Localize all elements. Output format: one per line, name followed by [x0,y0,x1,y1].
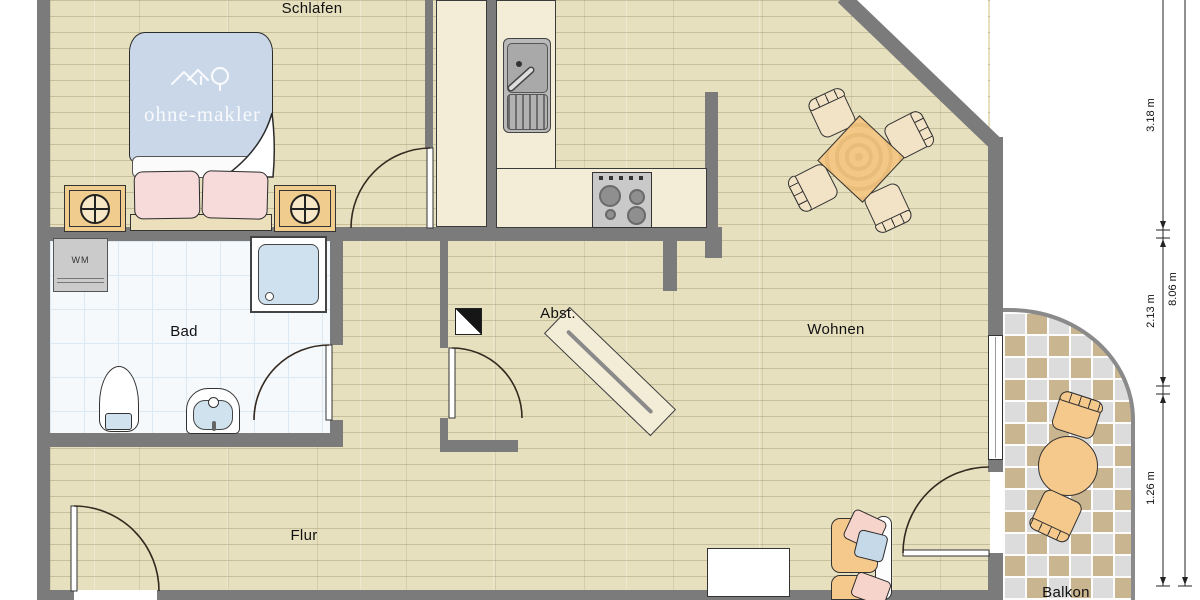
dim-3-18: 3.18 m [1145,98,1157,132]
room-label-abst: Abst. [528,305,588,322]
dim-8-06: 8.06 m [1167,272,1179,306]
nightstand-right [274,185,336,232]
dimension-arrows [1160,221,1188,585]
nightstand-left [64,185,126,232]
bed-pillow-left [134,170,201,219]
dim-2-13: 2.13 m [1145,294,1157,328]
burner [605,209,616,220]
sink-drain-stem [212,421,216,431]
lamp-icon [290,194,320,224]
balcony-window [988,335,1003,460]
dim-1-26: 1.26 m [1145,471,1157,505]
bathroom-sink [186,388,240,434]
room-label-wohnen: Wohnen [800,321,872,338]
wall-bad-right-top [330,241,343,345]
sink-drain [516,61,522,67]
sink-faucet [208,397,219,408]
balcony-table [1038,436,1098,496]
wall-abst-bottom [440,440,518,452]
wall-bad-bottom [37,433,343,447]
room-label-balkon: Balkon [1021,584,1111,600]
wall-abst-left-top [440,241,448,348]
dimension-lines [1156,0,1192,586]
wall-left [37,0,50,600]
toilet-cistern [105,413,132,430]
wall-right-lower [988,553,1003,600]
wall-right-upper [988,137,1003,335]
room-label-bad: Bad [154,323,214,340]
balcony-chair-bottom [1028,487,1085,545]
floor-plan: Balkon [0,0,1200,600]
wall-bottom-left [37,590,74,600]
wardrobe [436,0,487,227]
wall-bad-right-bottom [330,420,343,433]
watermark-text: ohne-makler [135,102,270,127]
shaft-symbol [455,308,482,335]
lamp-icon [80,194,110,224]
wall-abst-right [663,241,677,291]
wall-stub-kitchen [705,241,722,258]
shower [250,236,327,313]
wall-bedroom-right [425,0,433,148]
kitchen-sink [503,38,551,133]
burner [629,189,645,205]
burner [627,206,646,225]
wm-door-line [57,278,104,283]
washing-machine: WM [53,238,108,292]
wall-kitchen-left [487,0,496,227]
tv-sideboard [707,548,790,597]
chair-back [1027,517,1071,545]
balcony-chair-top [1050,389,1104,441]
room-label-flur: Flur [274,527,334,544]
shower-drain [265,292,274,301]
room-label-schlafen: Schlafen [269,0,355,17]
stove-knobs [599,176,645,180]
bed-pillow-right [201,170,268,220]
chair-back [1059,389,1105,413]
watermark: ohne-makler [135,62,270,127]
watermark-logo-icon [168,62,238,96]
sink-basin [507,43,548,93]
washing-machine-label: WM [54,255,107,265]
wall-right-mid [988,460,1003,472]
burner [599,185,621,207]
sink-drainer [507,94,548,130]
stove [592,172,652,228]
balcony-area: Balkon [1003,308,1135,600]
